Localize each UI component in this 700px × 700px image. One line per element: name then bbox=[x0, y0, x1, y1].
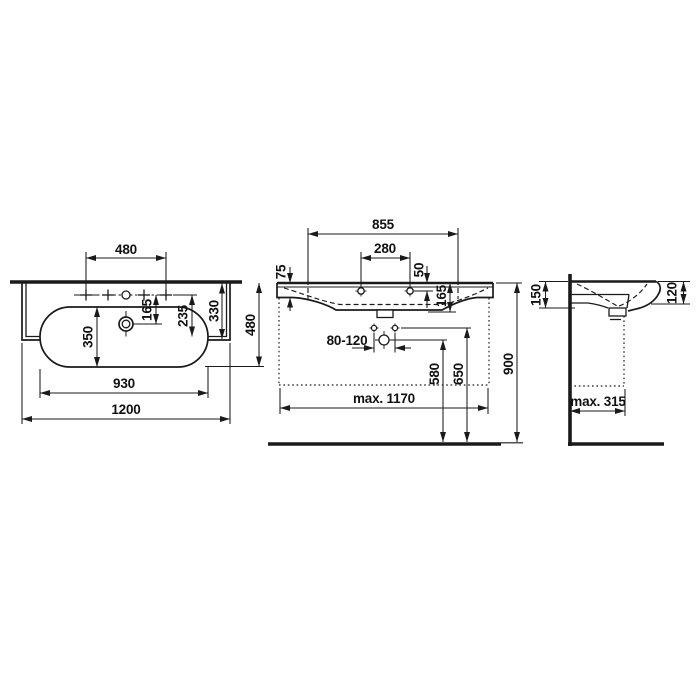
dim-label-overall-depth: 480 bbox=[243, 314, 258, 336]
dim-label-fixing-span: 280 bbox=[374, 241, 396, 256]
dim-rim-thickness-75: 75 bbox=[274, 264, 291, 311]
dim-ledge-depth-330: 330 bbox=[207, 284, 223, 340]
dim-label-fixing-height: 650 bbox=[451, 363, 466, 385]
dim-label-bowl-width: 930 bbox=[113, 376, 135, 391]
dim-fixing-range-80-120: 80-120 bbox=[327, 333, 411, 353]
dim-label-tap-to-front: 235 bbox=[176, 304, 191, 327]
dim-label-trap-height: 580 bbox=[427, 363, 442, 385]
dim-label-ledge-depth: 330 bbox=[207, 300, 222, 322]
deck-right-edge bbox=[477, 283, 493, 298]
side-view: 150 120 max. 315 bbox=[529, 274, 691, 446]
dim-label-max-furniture-depth: max. 315 bbox=[570, 394, 626, 409]
dim-label-tap-span: 855 bbox=[372, 217, 395, 232]
dim-max-furniture-depth: max. 315 bbox=[570, 389, 626, 416]
drain-outlet-front bbox=[377, 310, 393, 318]
dim-bowl-width-930: 930 bbox=[40, 366, 208, 398]
bolt-hole-left bbox=[370, 324, 379, 333]
dim-label-tap-offset: 50 bbox=[412, 263, 427, 278]
front-view: 855 280 75 50 165 bbox=[268, 217, 523, 444]
dim-label-outlet-depth: 165 bbox=[434, 284, 449, 307]
furniture-zone-side bbox=[570, 316, 624, 386]
dim-label-tap-spacing: 480 bbox=[115, 242, 137, 257]
dim-label-front-height: 120 bbox=[665, 282, 680, 304]
drain-outlet-side bbox=[609, 308, 626, 316]
dim-fixing-span-280: 280 bbox=[361, 241, 410, 286]
tap-hole bbox=[122, 291, 130, 299]
dim-label-fixing-range: 80-120 bbox=[327, 333, 368, 348]
plan-view: 480 165 235 330 480 350 bbox=[10, 242, 264, 424]
technical-drawing-washbasin: 480 165 235 330 480 350 bbox=[0, 0, 700, 700]
dim-rim-height-900: 900 bbox=[496, 283, 522, 442]
bowl-underside-front bbox=[293, 298, 477, 311]
dim-label-bowl-depth: 350 bbox=[81, 326, 96, 348]
dim-front-height-120: 120 bbox=[651, 282, 690, 305]
bolt-hole-right bbox=[391, 324, 400, 333]
dim-label-overall-width: 1200 bbox=[111, 402, 140, 417]
dim-max-furniture-width: max. 1170 bbox=[280, 388, 488, 414]
dim-label-max-furniture-width: max. 1170 bbox=[353, 391, 415, 406]
dim-label-rim-thickness: 75 bbox=[274, 264, 289, 279]
dim-label-tap-to-drain: 165 bbox=[140, 298, 155, 321]
dim-back-height-150: 150 bbox=[529, 282, 576, 309]
dim-tap-offset-50: 50 bbox=[412, 263, 434, 308]
bowl-underside-side bbox=[571, 303, 608, 308]
dim-overall-depth-480: 480 bbox=[205, 283, 264, 367]
dim-label-back-height: 150 bbox=[529, 284, 544, 306]
deck-left-edge bbox=[277, 283, 293, 298]
drawing-canvas: 480 165 235 330 480 350 bbox=[0, 0, 700, 700]
dim-label-rim-height: 900 bbox=[501, 353, 516, 375]
front-bullnose-side bbox=[628, 282, 660, 312]
